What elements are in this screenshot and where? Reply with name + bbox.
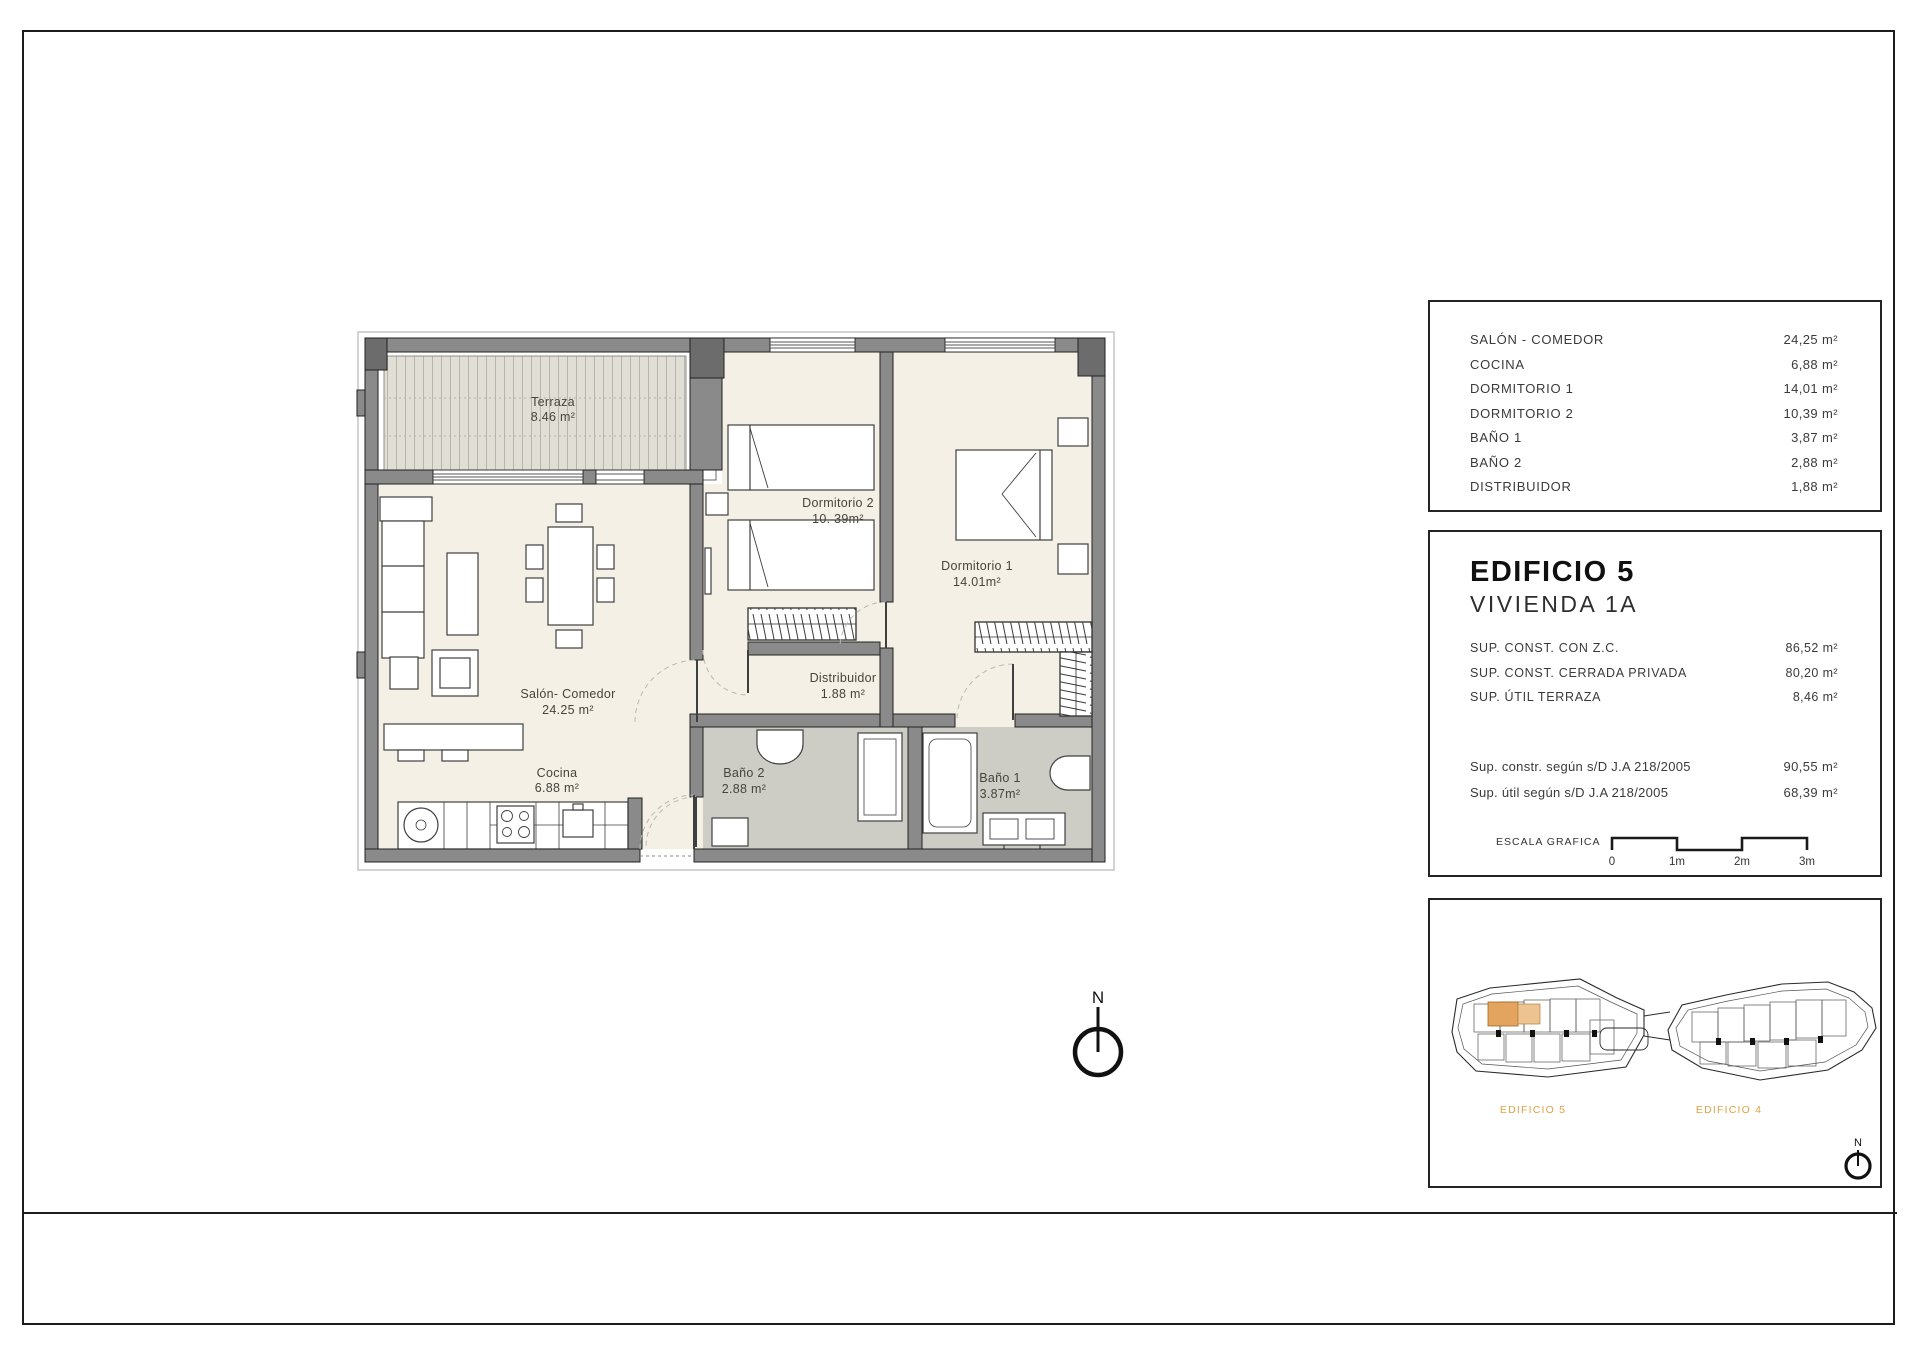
legal-value: 68,39 m² [1783, 780, 1838, 806]
room-label-terraza: Terraza [531, 395, 575, 409]
room-area-dormitorio1: 14.01m² [953, 575, 1001, 589]
table-row: COCINA6,88 m² [1430, 353, 1880, 378]
room-area-distribuidor: 1.88 m² [821, 687, 865, 701]
unit-title: VIVIENDA 1A [1470, 591, 1880, 618]
room-area: 14,01 m² [1783, 377, 1838, 402]
building-4-label: EDIFICIO 4 [1696, 1104, 1762, 1116]
north-label: N [1092, 988, 1104, 1007]
room-areas-panel: SALÓN - COMEDOR24,25 m² COCINA6,88 m² DO… [1428, 300, 1882, 512]
surface-value: 8,46 m² [1793, 685, 1838, 710]
scale-tick: 1m [1669, 856, 1685, 868]
room-area-bano2: 2.88 m² [722, 782, 766, 796]
room-area: 3,87 m² [1791, 426, 1838, 451]
room-name: BAÑO 1 [1470, 426, 1522, 451]
surface-row: SUP. CONST. CON Z.C.86,52 m² [1430, 636, 1880, 661]
room-area-cocina: 6.88 m² [535, 781, 579, 795]
scale-tick: 0 [1609, 856, 1615, 868]
legal-value: 90,55 m² [1783, 754, 1838, 780]
room-name: DORMITORIO 1 [1470, 377, 1574, 402]
room-area: 24,25 m² [1783, 328, 1838, 353]
room-name: DORMITORIO 2 [1470, 402, 1574, 427]
scale-tick: 2m [1734, 856, 1750, 868]
room-name: SALÓN - COMEDOR [1470, 328, 1604, 353]
table-row: BAÑO 22,88 m² [1430, 451, 1880, 476]
surface-label: SUP. CONST. CERRADA PRIVADA [1470, 661, 1687, 686]
north-compass-icon: N [1058, 985, 1138, 1085]
surface-row: SUP. ÚTIL TERRAZA8,46 m² [1430, 685, 1880, 710]
room-label-distribuidor: Distribuidor [810, 671, 877, 685]
room-label-bano2: Baño 2 [723, 766, 764, 780]
highlighted-unit [1488, 1002, 1518, 1026]
building-5-label: EDIFICIO 5 [1500, 1104, 1566, 1116]
room-area: 1,88 m² [1791, 475, 1838, 500]
building-title: EDIFICIO 5 [1470, 556, 1880, 589]
legal-label: Sup. útil según s/D J.A 218/2005 [1470, 780, 1668, 806]
table-row: DISTRIBUIDOR1,88 m² [1430, 475, 1880, 500]
site-plan-panel: EDIFICIO 5 EDIFICIO 4 N [1428, 898, 1882, 1188]
room-area: 6,88 m² [1791, 353, 1838, 378]
surface-value: 80,20 m² [1785, 661, 1838, 686]
room-label-salon: Salón- Comedor [520, 687, 615, 701]
site-connector [1600, 1012, 1670, 1050]
legal-row: Sup. útil según s/D J.A 218/200568,39 m² [1430, 780, 1880, 806]
table-row: SALÓN - COMEDOR24,25 m² [1430, 328, 1880, 353]
table-row: BAÑO 13,87 m² [1430, 426, 1880, 451]
surface-label: SUP. CONST. CON Z.C. [1470, 636, 1619, 661]
room-area-terraza: 8.46 m² [531, 410, 575, 424]
scale-tick: 3m [1799, 856, 1815, 868]
title-block-divider [22, 1212, 1897, 1214]
legal-row: Sup. constr. según s/D J.A 218/200590,55… [1430, 754, 1880, 780]
room-name: DISTRIBUIDOR [1470, 475, 1572, 500]
room-label-cocina: Cocina [537, 766, 578, 780]
unit-info-panel: EDIFICIO 5 VIVIENDA 1A SUP. CONST. CON Z… [1428, 530, 1882, 877]
table-row: DORMITORIO 114,01 m² [1430, 377, 1880, 402]
room-name: BAÑO 2 [1470, 451, 1522, 476]
scale-label: ESCALA GRAFICA [1496, 836, 1604, 848]
room-label-dormitorio2: Dormitorio 2 [802, 496, 874, 510]
highlighted-unit-2 [1518, 1004, 1540, 1024]
site-plan: EDIFICIO 5 EDIFICIO 4 N [1430, 900, 1880, 1186]
graphic-scale: ESCALA GRAFICA 0 1m 2m 3m [1496, 832, 1880, 872]
room-area-dormitorio2: 10. 39m² [812, 512, 864, 526]
surface-value: 86,52 m² [1785, 636, 1838, 661]
building-4-outline [1668, 982, 1876, 1080]
room-area: 2,88 m² [1791, 451, 1838, 476]
legal-label: Sup. constr. según s/D J.A 218/2005 [1470, 754, 1691, 780]
room-label-bano1: Baño 1 [979, 771, 1020, 785]
room-label-dormitorio1: Dormitorio 1 [941, 559, 1013, 573]
floor-plan: Terraza 8.46 m² Salón- Comedor 24.25 m² … [352, 328, 1124, 873]
site-north-label: N [1854, 1137, 1862, 1149]
room-area-salon: 24.25 m² [542, 703, 594, 717]
surface-label: SUP. ÚTIL TERRAZA [1470, 685, 1601, 710]
room-name: COCINA [1470, 353, 1525, 378]
kitchen-furniture [398, 802, 628, 849]
table-row: DORMITORIO 210,39 m² [1430, 402, 1880, 427]
scale-bar: 0 1m 2m 3m [1604, 832, 1824, 872]
site-north-compass-icon: N [1846, 1137, 1870, 1178]
room-area: 10,39 m² [1783, 402, 1838, 427]
room-area-bano1: 3.87m² [980, 787, 1021, 801]
surface-row: SUP. CONST. CERRADA PRIVADA80,20 m² [1430, 661, 1880, 686]
plan-sheet: Terraza 8.46 m² Salón- Comedor 24.25 m² … [0, 0, 1920, 1356]
